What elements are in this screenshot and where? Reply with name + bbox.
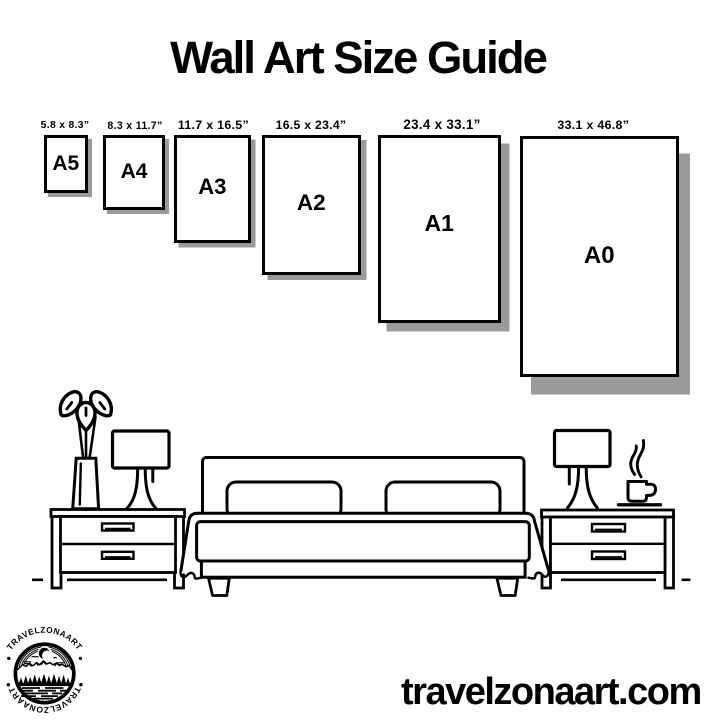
svg-text:TRAVELZONAART: TRAVELZONAART [6,685,83,715]
